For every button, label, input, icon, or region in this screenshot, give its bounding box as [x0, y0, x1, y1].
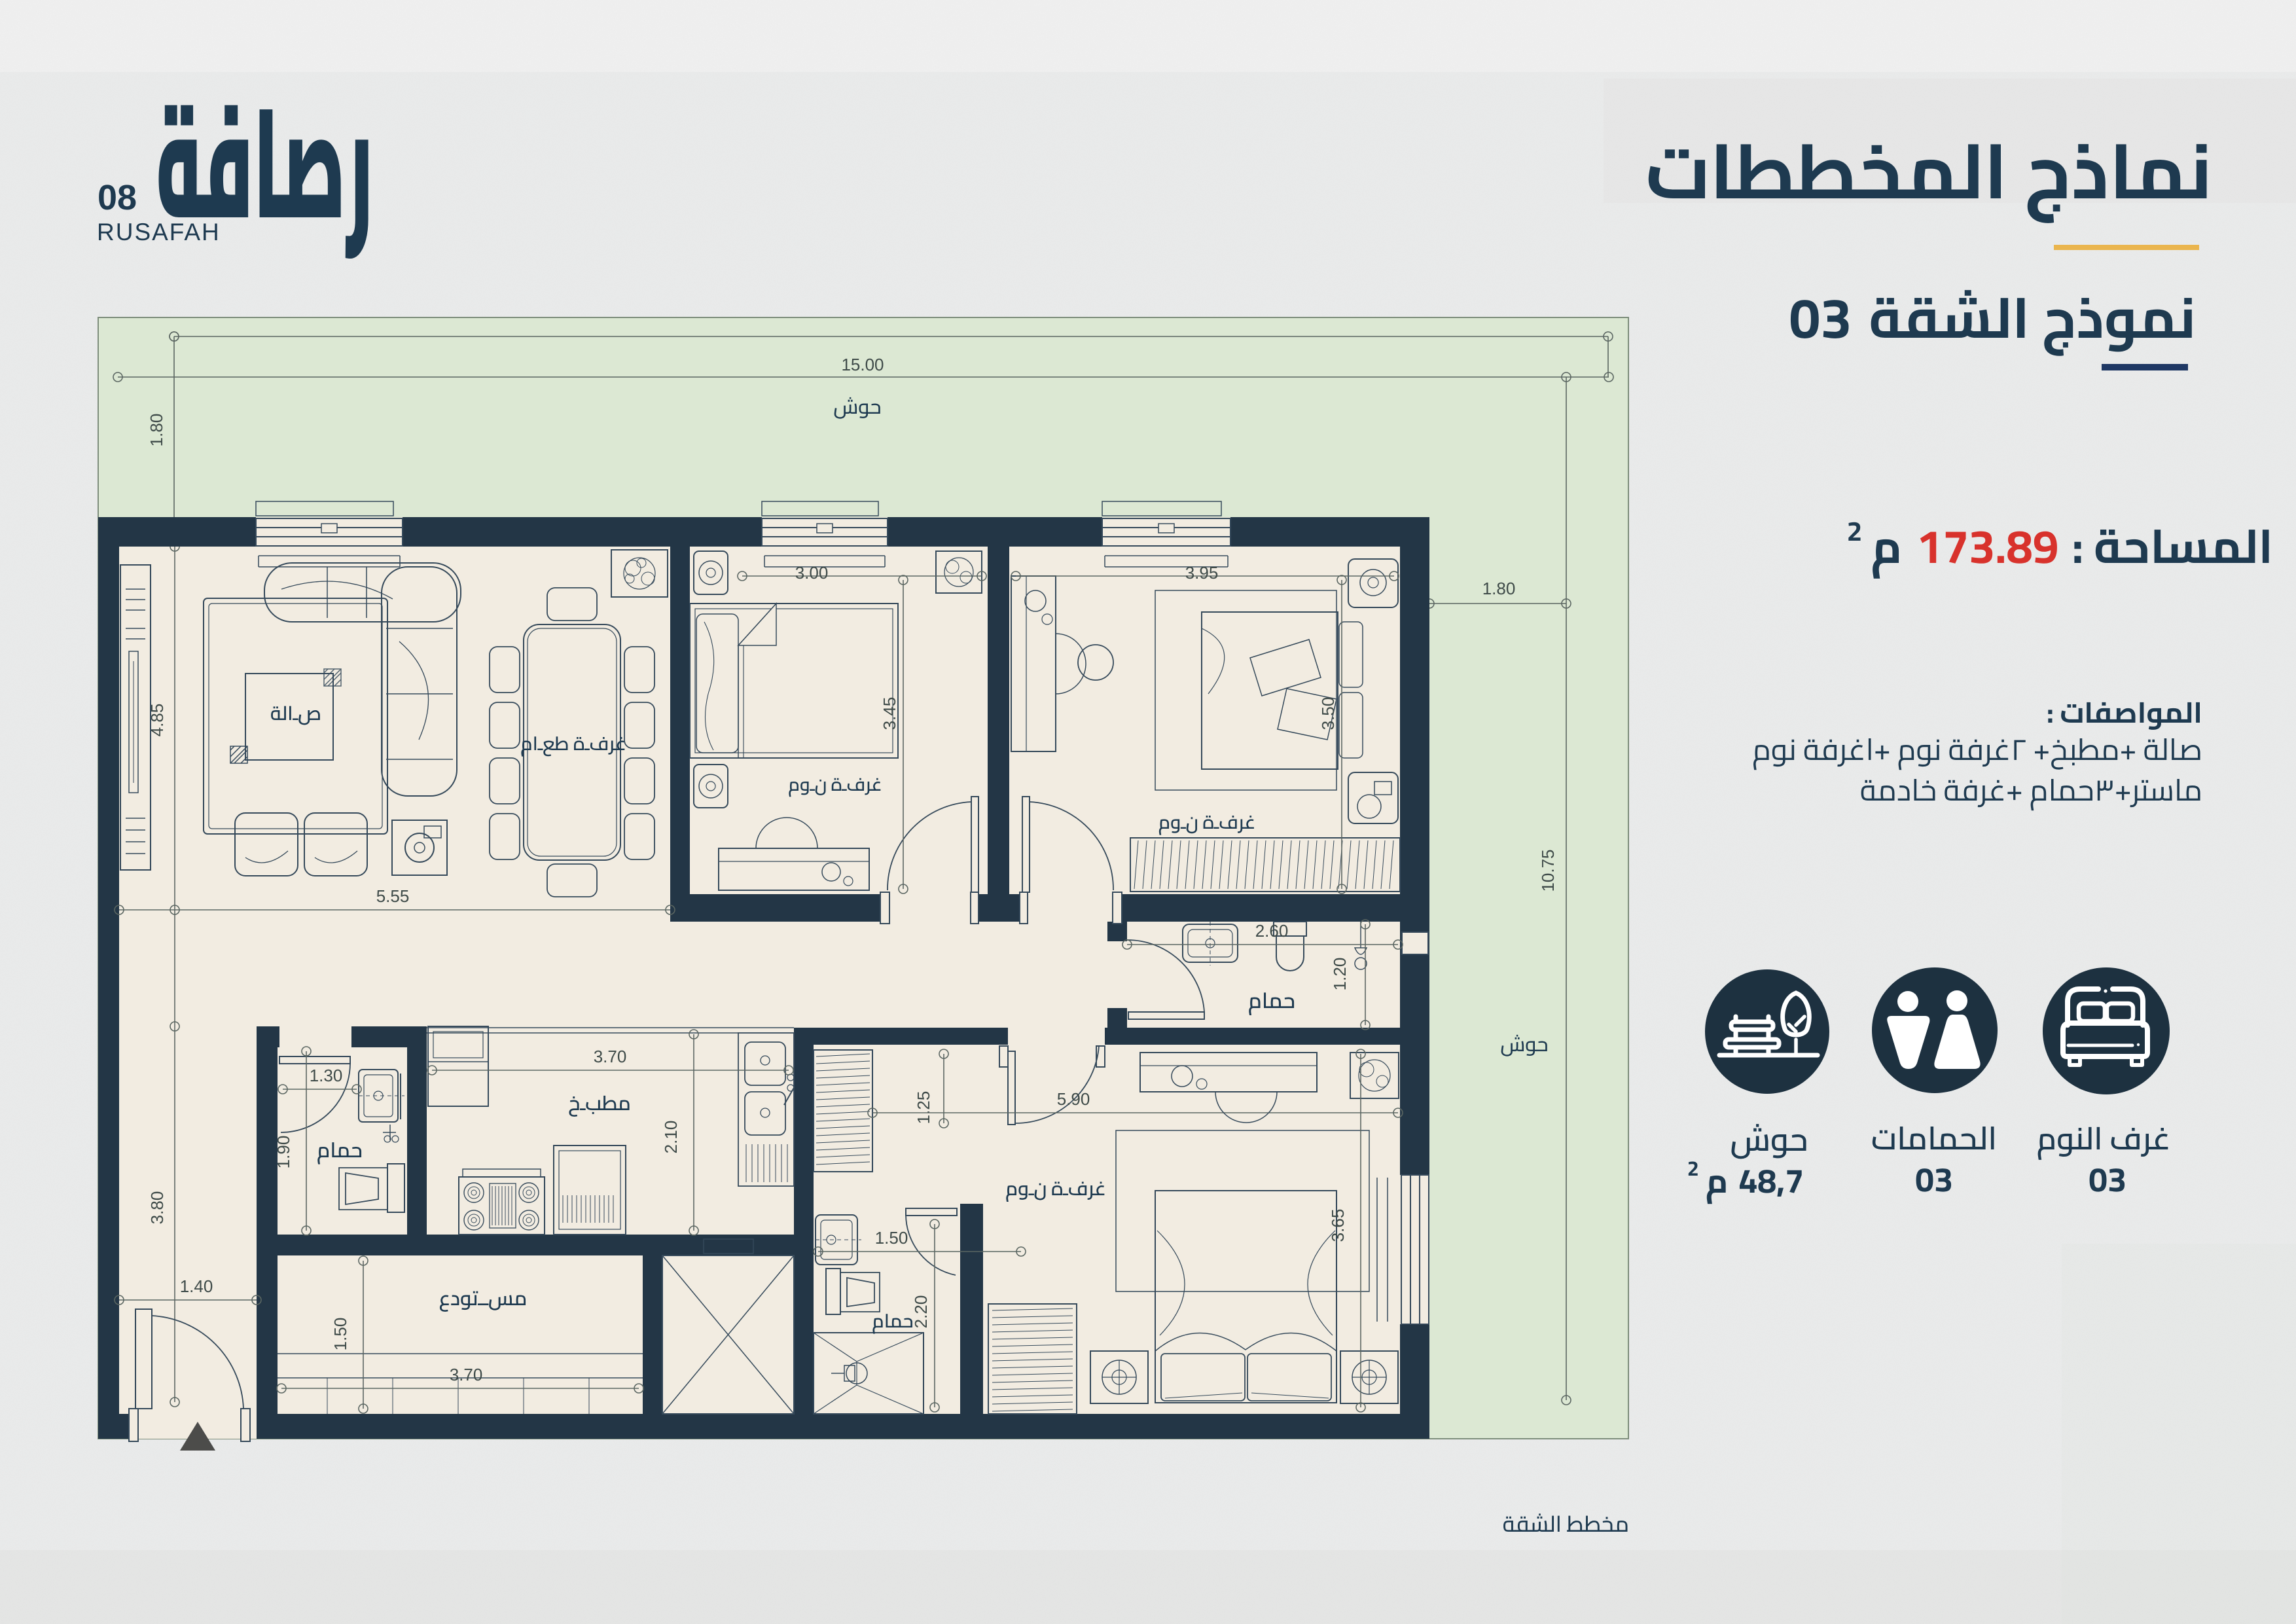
svg-text:10.75: 10.75: [1538, 849, 1558, 892]
svg-text:RUSAFAH: RUSAFAH: [97, 219, 221, 245]
svg-text:1.80: 1.80: [147, 414, 166, 447]
svg-text:1.50: 1.50: [875, 1228, 908, 1248]
svg-text:1.50: 1.50: [331, 1318, 350, 1351]
svg-text:3.00: 3.00: [795, 563, 829, 583]
svg-text:2.60: 2.60: [1255, 921, 1289, 941]
svg-text:2.20: 2.20: [911, 1295, 931, 1329]
svg-text:5.55: 5.55: [376, 886, 410, 906]
svg-text:1.40: 1.40: [180, 1276, 213, 1296]
svg-text:3.95: 3.95: [1185, 563, 1219, 583]
svg-text:1.90: 1.90: [274, 1136, 293, 1169]
svg-text:1.20: 1.20: [1330, 958, 1350, 991]
svg-text:1.30: 1.30: [310, 1066, 343, 1085]
svg-text:2.10: 2.10: [661, 1121, 681, 1154]
svg-text:3.80: 3.80: [147, 1191, 167, 1225]
svg-text:3.70: 3.70: [594, 1047, 627, 1066]
svg-text:15.00: 15.00: [841, 355, 884, 374]
svg-text:3.65: 3.65: [1328, 1209, 1348, 1242]
svg-text:1.80: 1.80: [1482, 579, 1516, 598]
svg-text:3.70: 3.70: [450, 1365, 483, 1384]
svg-text:08: 08: [98, 178, 137, 217]
svg-text:3.50: 3.50: [1318, 697, 1338, 731]
svg-text:3.45: 3.45: [880, 697, 899, 731]
svg-text:1.25: 1.25: [914, 1091, 933, 1125]
svg-text:5.90: 5.90: [1057, 1089, 1090, 1109]
